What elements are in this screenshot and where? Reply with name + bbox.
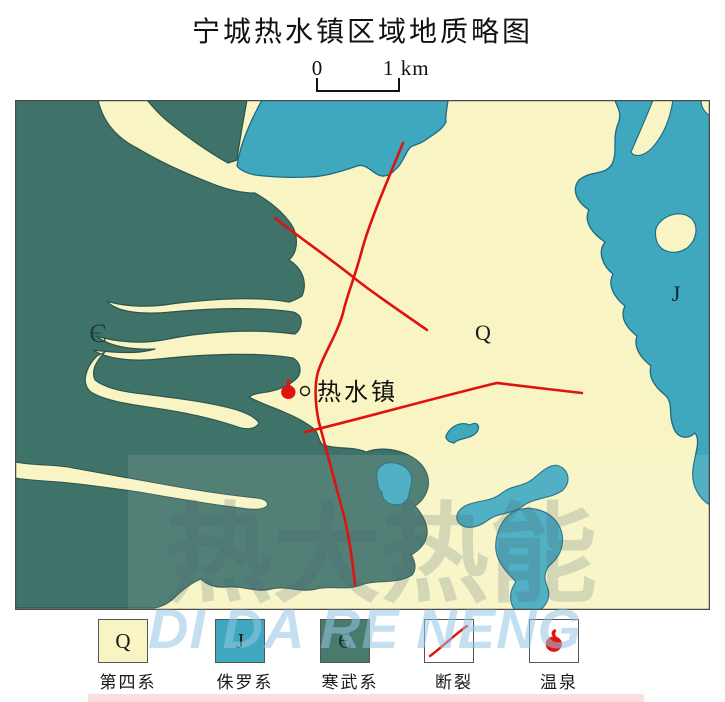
jurassic-label: J: [672, 281, 681, 306]
legend-label-hot-spring: 温泉: [509, 668, 609, 693]
map-canvas: 热大热能 Є Q J 热水镇: [15, 100, 710, 610]
legend-swatch-quaternary: Q: [98, 619, 148, 663]
hot-spring-icon: [530, 620, 578, 662]
scale-bar: [316, 78, 400, 92]
legend-label-cambrian: 寒武系: [300, 668, 400, 693]
geological-map: 热大热能 Є Q J 热水镇: [15, 100, 710, 610]
town-label: 热水镇: [317, 379, 398, 406]
legend-symbol-q: Q: [115, 629, 130, 654]
legend-symbol-j: J: [236, 629, 244, 654]
quaternary-label: Q: [475, 320, 491, 345]
cambrian-label: Є: [89, 319, 106, 348]
legend-swatch-fault: [424, 619, 474, 663]
legend-symbol-e: Є: [338, 629, 352, 654]
legend-swatch-cambrian: Є: [320, 619, 370, 663]
watermark-pink-strip: [88, 694, 644, 702]
legend-swatch-jurassic: J: [215, 619, 265, 663]
watermark-line1: 热大热能: [165, 494, 597, 610]
legend-label-jurassic: 侏罗系: [195, 668, 295, 693]
page-title: 宁城热水镇区域地质略图: [0, 10, 725, 50]
legend-label-quaternary: 第四系: [78, 668, 178, 693]
legend-label-fault: 断裂: [404, 668, 504, 693]
fault-line-icon: [425, 620, 473, 662]
legend-swatch-hot-spring: [529, 619, 579, 663]
